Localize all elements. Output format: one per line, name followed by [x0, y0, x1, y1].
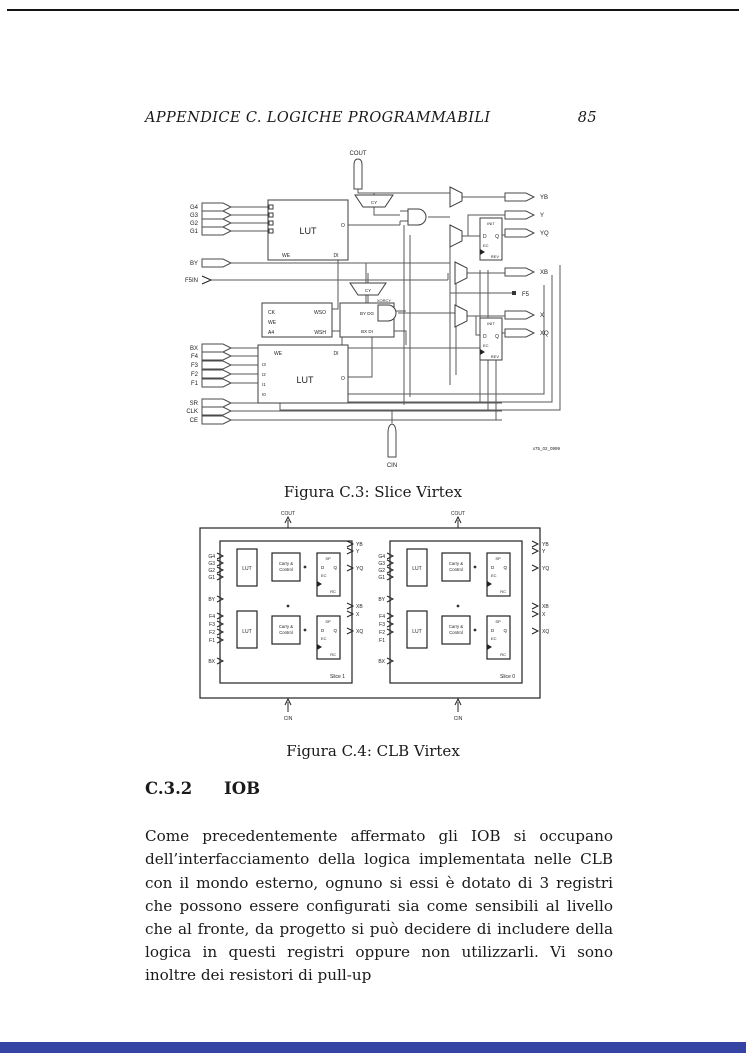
fig2-s1-by: BY — [208, 597, 215, 603]
fig2-s0-out-xb: XB — [542, 604, 549, 610]
fig2-s1-ff1-ec: EC — [321, 573, 327, 578]
fig1-cy-bottom-label: CY — [365, 288, 371, 293]
fig1-ff1-init: INIT — [487, 221, 495, 226]
fig2-cin0-label: CIN — [454, 716, 463, 722]
fig2-s1-carry1-top: Carry & — [279, 561, 293, 566]
fig1-cin-pin — [388, 424, 396, 457]
fig1-output-yb: YB — [540, 195, 548, 201]
fig2-s0-lut-top: LUT — [412, 566, 421, 572]
fig2-s1-g1: G1 — [208, 575, 215, 581]
fig2-s1-ff1-rc: RC — [330, 589, 336, 594]
fig1-wsgen-wsh: WSH — [314, 330, 326, 336]
fig2-s1-bx: BX — [208, 659, 215, 665]
fig2-s1-ff2-q: Q — [333, 628, 337, 633]
fig1-dg-row1: BY DG — [360, 311, 374, 316]
fig2-s0-carry1-bottom: Carry & — [449, 624, 463, 629]
fig2-s0-out-xq: XQ — [542, 629, 549, 635]
fig2-cout0-label: COUT — [451, 511, 465, 517]
fig2-s0-ff1-rc: RC — [500, 589, 506, 594]
fig1-output-y: Y — [540, 213, 544, 219]
bottom-scan-bar — [0, 1042, 746, 1053]
fig1-wsgen-a4: A4 — [268, 330, 274, 336]
fig1-input-g3: G3 — [190, 213, 199, 219]
fig1-ff1-q: Q — [495, 234, 499, 240]
fig1-input-ce: CE — [190, 418, 198, 424]
running-header: APPENDICE C. LOGICHE PROGRAMMABILI 85 — [145, 110, 597, 126]
fig1-output-xb: XB — [540, 270, 548, 276]
fig1-wsgen-wso: WSO — [314, 310, 326, 316]
fig2-s0-ff2-q: Q — [503, 628, 507, 633]
fig2-s0-f3: F3 — [379, 622, 385, 628]
fig2-s0-ff2-ec: EC — [491, 636, 497, 641]
fig1-f-lut-o: O — [341, 376, 345, 382]
fig2-s1-lut-top: LUT — [242, 566, 251, 572]
fig1-g-lut-label: LUT — [299, 226, 317, 236]
fig2-s0-ff1-sp: SP — [495, 556, 501, 561]
fig1-f-lut-we: WE — [274, 351, 283, 357]
fig2-s0-carry1-top: Carry & — [449, 561, 463, 566]
fig2-s1-carry1-bottom: Carry & — [279, 624, 293, 629]
fig1-xorcy-label: XORCY — [377, 298, 392, 303]
fig1-output-pins — [505, 193, 534, 337]
fig1-g-lut-di: DI — [334, 253, 339, 259]
fig1-cout-pin — [354, 159, 362, 189]
fig1-ff1-rev: REV — [491, 254, 500, 259]
fig1-ff1-ec: EC — [483, 243, 489, 248]
fig1-ff2-q: Q — [495, 334, 499, 340]
figure1-caption: Figura C.3: Slice Virtex — [0, 483, 746, 501]
section-title: IOB — [224, 779, 260, 798]
fig2-s0-out-x: X — [542, 612, 546, 618]
fig2-s0-f4: F4 — [379, 614, 385, 620]
fig2-s1-ff2-rc: RC — [330, 652, 336, 657]
fig2-s0-g2: G2 — [378, 568, 385, 574]
fig2-s1-g3: G3 — [208, 561, 215, 567]
fig1-watermark: x75_02_0999 — [533, 446, 561, 451]
fig1-cout-label: COUT — [350, 151, 367, 157]
fig1-input-g2: G2 — [190, 221, 199, 227]
fig1-input-g1: G1 — [190, 229, 199, 235]
fig2-s1-carry2-bottom: Control — [279, 630, 293, 635]
fig1-f-lut-label: LUT — [296, 375, 314, 385]
fig1-output-f5: F5 — [522, 292, 530, 298]
fig2-s0-g3: G3 — [378, 561, 385, 567]
fig2-s1-f2: F2 — [209, 630, 215, 636]
section-heading: C.3.2 IOB — [145, 779, 260, 798]
fig2-s1-out-xb: XB — [356, 604, 363, 610]
fig2-s1-ff2-ec: EC — [321, 636, 327, 641]
figure-slice-virtex: COUT CIN G4 G3 G2 G1 BY F5IN BX F4 F3 F2… — [150, 145, 625, 470]
fig2-s0-bx: BX — [378, 659, 385, 665]
fig1-xorcy-gate — [378, 305, 396, 321]
fig2-s1-lut-bottom: LUT — [242, 629, 251, 635]
body-paragraph: Come precedentemente affermato gli IOB s… — [145, 825, 613, 987]
fig1-ff2-rev: REV — [491, 354, 500, 359]
fig1-gate-top — [408, 209, 426, 225]
fig2-s1-ff1-sp: SP — [325, 556, 331, 561]
fig2-s0-out-yq: YQ — [542, 566, 549, 572]
fig1-f-lut-i3: I3 — [262, 362, 266, 367]
running-head-text: APPENDICE C. LOGICHE PROGRAMMABILI — [145, 110, 491, 126]
fig2-s0-by: BY — [378, 597, 385, 603]
fig1-mux-x — [455, 305, 467, 327]
fig1-input-f4: F4 — [191, 354, 199, 360]
fig2-s1-out-yq: YQ — [356, 566, 363, 572]
fig2-s0-f2: F2 — [379, 630, 385, 636]
fig1-mux-xb — [455, 262, 467, 284]
fig1-mux-y — [450, 225, 462, 247]
fig2-s1-ff2-sp: SP — [325, 619, 331, 624]
fig2-s0-ff2-sp: SP — [495, 619, 501, 624]
fig1-ff1-d: D — [483, 234, 487, 240]
fig1-wsgen-we: WE — [268, 320, 277, 326]
fig1-input-f1: F1 — [191, 381, 199, 387]
fig2-s0-carry2-bottom: Control — [449, 630, 463, 635]
fig2-s0-ff2-rc: RC — [500, 652, 506, 657]
fig1-input-clk: CLK — [186, 409, 198, 415]
fig2-cout1-label: COUT — [281, 511, 295, 517]
fig1-ff2-d: D — [483, 334, 487, 340]
fig2-s0-g1: G1 — [378, 575, 385, 581]
fig2-s1-out-yb: YB — [356, 542, 363, 548]
fig1-input-f5in: F5IN — [185, 278, 198, 284]
document-page: APPENDICE C. LOGICHE PROGRAMMABILI 85 — [0, 0, 746, 1055]
fig2-s0-ff1-q: Q — [503, 565, 507, 570]
fig1-dg-row2: BX DI — [361, 329, 373, 334]
fig1-f-lut-i1: I1 — [262, 382, 266, 387]
fig2-cin1-label: CIN — [284, 716, 293, 722]
fig1-ff2-ec: EC — [483, 343, 489, 348]
fig1-output-x: X — [540, 313, 544, 319]
fig1-f-lut-i2: I2 — [262, 372, 266, 377]
fig2-s1-out-xq: XQ — [356, 629, 363, 635]
fig2-s1-f1: F1 — [209, 638, 215, 644]
fig1-mux-yb — [450, 187, 462, 207]
fig2-s1-g2: G2 — [208, 568, 215, 574]
fig1-cin-label: CIN — [387, 463, 397, 469]
page-number: 85 — [578, 110, 597, 126]
figure2-caption: Figura C.4: CLB Virtex — [0, 742, 746, 760]
fig1-ff2-init: INIT — [487, 321, 495, 326]
fig2-s0-carry2-top: Control — [449, 567, 463, 572]
fig1-f-lut-i0: I0 — [262, 392, 266, 397]
fig2-s0-ff1-ec: EC — [491, 573, 497, 578]
fig2-s1-g4: G4 — [208, 554, 215, 560]
fig2-slice1-label: Slice 1 — [330, 674, 345, 680]
fig1-g-lut-o: O — [341, 223, 345, 229]
fig2-s1-f3: F3 — [209, 622, 215, 628]
fig1-output-yq: YQ — [540, 231, 549, 237]
section-number: C.3.2 — [145, 779, 192, 798]
fig1-input-pins — [202, 203, 231, 424]
fig1-input-f2: F2 — [191, 372, 199, 378]
fig1-cy-top-label: CY — [371, 200, 377, 205]
fig2-s1-carry2-top: Control — [279, 567, 293, 572]
fig2-s0-g4: G4 — [378, 554, 385, 560]
fig2-s0-out-yb: YB — [542, 542, 549, 548]
fig2-s1-f4: F4 — [209, 614, 215, 620]
fig1-input-f3: F3 — [191, 363, 199, 369]
fig1-input-by: BY — [190, 261, 198, 267]
fig2-s0-f1: F1 — [379, 638, 385, 644]
fig2-slice0-label: Slice 0 — [500, 674, 515, 680]
fig1-input-g4: G4 — [190, 205, 199, 211]
fig1-g-lut-we: WE — [282, 253, 291, 259]
fig2-s0-lut-bottom: LUT — [412, 629, 421, 635]
figure-clb-virtex: COUT CIN G4 G3 G2 G1 BY F4 F3 F2 F1 BX L… — [195, 508, 555, 723]
fig1-wsgen-ck: CK — [268, 310, 276, 316]
top-rule — [7, 9, 739, 11]
fig2-s0-out-y: Y — [542, 549, 546, 555]
fig1-input-bx: BX — [190, 346, 198, 352]
fig1-f-lut-di: DI — [334, 351, 339, 357]
fig2-s1-ff1-q: Q — [333, 565, 337, 570]
fig1-input-sr: SR — [190, 401, 199, 407]
fig1-output-xq: XQ — [540, 331, 549, 337]
